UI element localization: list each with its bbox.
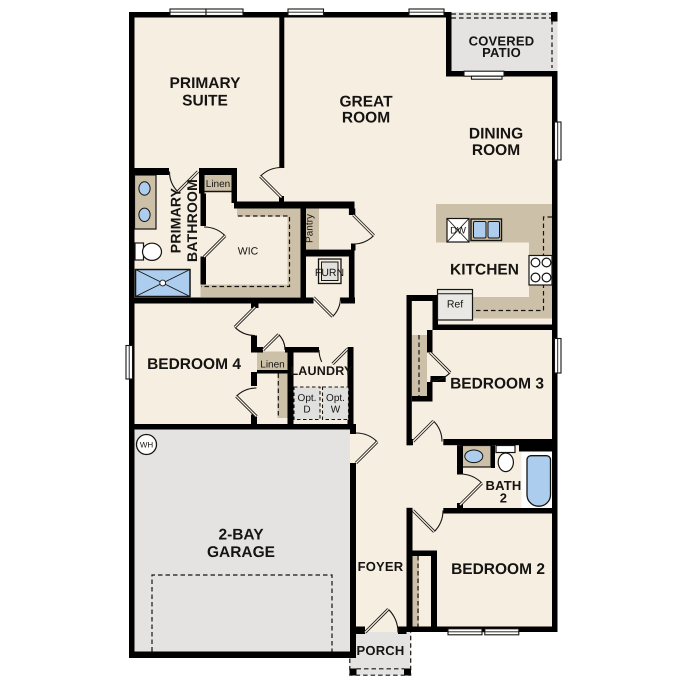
svg-text:SUITE: SUITE [182,93,228,110]
svg-text:Pantry: Pantry [305,214,316,243]
svg-text:DW: DW [450,226,466,237]
svg-text:PRIMARY: PRIMARY [170,75,242,92]
svg-text:Ref: Ref [447,299,463,311]
svg-text:WH: WH [140,441,154,450]
svg-text:WIC: WIC [238,246,259,258]
svg-text:FURN: FURN [315,267,344,279]
svg-text:2-BAY: 2-BAY [218,527,264,544]
svg-text:W: W [331,405,341,416]
svg-text:Opt.: Opt. [326,393,345,404]
svg-text:LAUNDRY: LAUNDRY [290,364,353,378]
svg-text:FOYER: FOYER [358,559,404,574]
svg-text:D: D [303,405,310,416]
svg-text:Opt.: Opt. [298,393,317,404]
svg-text:PRIMARY: PRIMARY [168,187,184,253]
svg-text:BEDROOM 3: BEDROOM 3 [450,376,544,393]
svg-text:BEDROOM 2: BEDROOM 2 [451,561,545,578]
svg-text:GARAGE: GARAGE [207,544,275,561]
svg-text:KITCHEN: KITCHEN [450,262,519,279]
svg-text:Linen: Linen [260,360,284,371]
svg-text:BATHROOM: BATHROOM [184,179,200,262]
svg-text:PORCH: PORCH [357,643,405,658]
svg-text:DINING: DINING [469,126,523,143]
svg-text:ROOM: ROOM [342,110,390,127]
svg-text:GREAT: GREAT [339,94,393,111]
svg-text:BEDROOM 4: BEDROOM 4 [147,356,241,373]
svg-text:Linen: Linen [206,179,230,190]
svg-text:ROOM: ROOM [472,142,520,159]
svg-text:PATIO: PATIO [482,45,521,60]
svg-text:2: 2 [500,491,507,506]
